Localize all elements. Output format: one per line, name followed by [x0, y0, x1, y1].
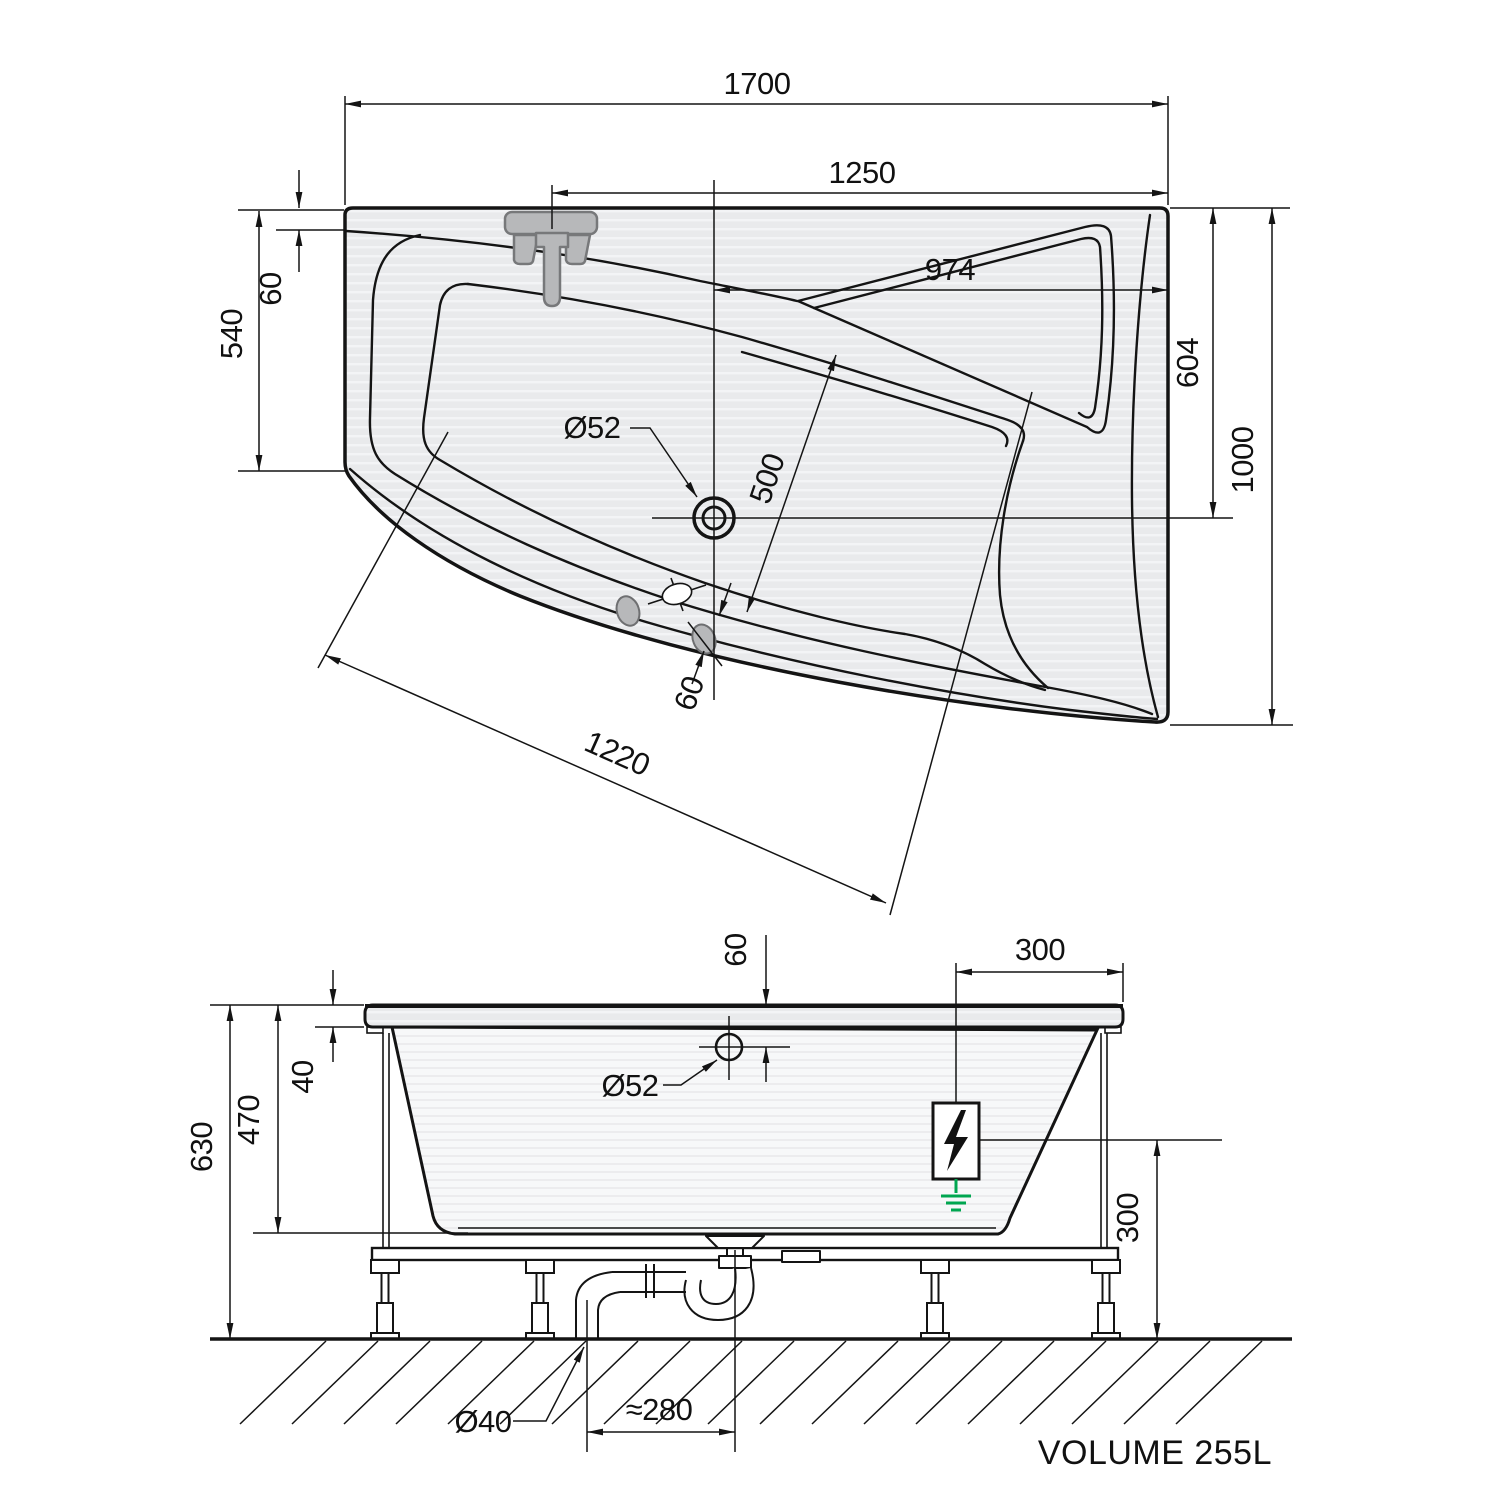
frame-foot — [371, 1260, 399, 1339]
frame-foot — [526, 1260, 554, 1339]
dim-drain-diameter: Ø52 — [563, 410, 620, 445]
dim-basin-diagonal: 1220 — [580, 724, 656, 783]
dim-faucet-to-right: 1250 — [829, 155, 896, 190]
dim-drain-top-offset: 60 — [718, 933, 753, 967]
drain-flange — [706, 1236, 764, 1248]
side-view: 630 470 40 60 Ø52 300 300 Ø40 ≈280 — [184, 932, 1292, 1452]
dim-electrical-height: 300 — [1110, 1193, 1145, 1243]
dim-electrical-inset: 300 — [1015, 932, 1065, 967]
dim-shell-height: 470 — [231, 1095, 266, 1145]
dim-drain-from-back: 604 — [1170, 338, 1205, 388]
dim-drain-diameter-side: Ø52 — [601, 1068, 658, 1103]
frame-foot — [1092, 1260, 1120, 1339]
dim-jet-offset: 60 — [667, 671, 711, 715]
dim-trap-offset: ≈280 — [626, 1392, 693, 1427]
frame-foot — [921, 1260, 949, 1339]
tub-body-side — [392, 1027, 1097, 1234]
dim-rim-thickness: 40 — [285, 1060, 320, 1094]
dim-left-depth: 540 — [214, 309, 249, 359]
technical-drawing-page: 1700 1250 974 60 540 604 1000 Ø52 500 12… — [0, 0, 1500, 1500]
dim-overall-width: 1000 — [1225, 426, 1260, 493]
floor — [210, 1339, 1292, 1424]
volume-label: VOLUME 255L — [1038, 1434, 1272, 1472]
dim-faucet-offset: 60 — [253, 272, 288, 306]
dim-waste-diameter: Ø40 — [454, 1404, 511, 1439]
bathtub-drawing: 1700 1250 974 60 540 604 1000 Ø52 500 12… — [0, 0, 1500, 1500]
dim-overall-length: 1700 — [724, 66, 791, 101]
dim-drain-to-right: 974 — [925, 252, 975, 287]
plan-view: 1700 1250 974 60 540 604 1000 Ø52 500 12… — [214, 66, 1293, 915]
dim-overall-height: 630 — [184, 1122, 219, 1172]
